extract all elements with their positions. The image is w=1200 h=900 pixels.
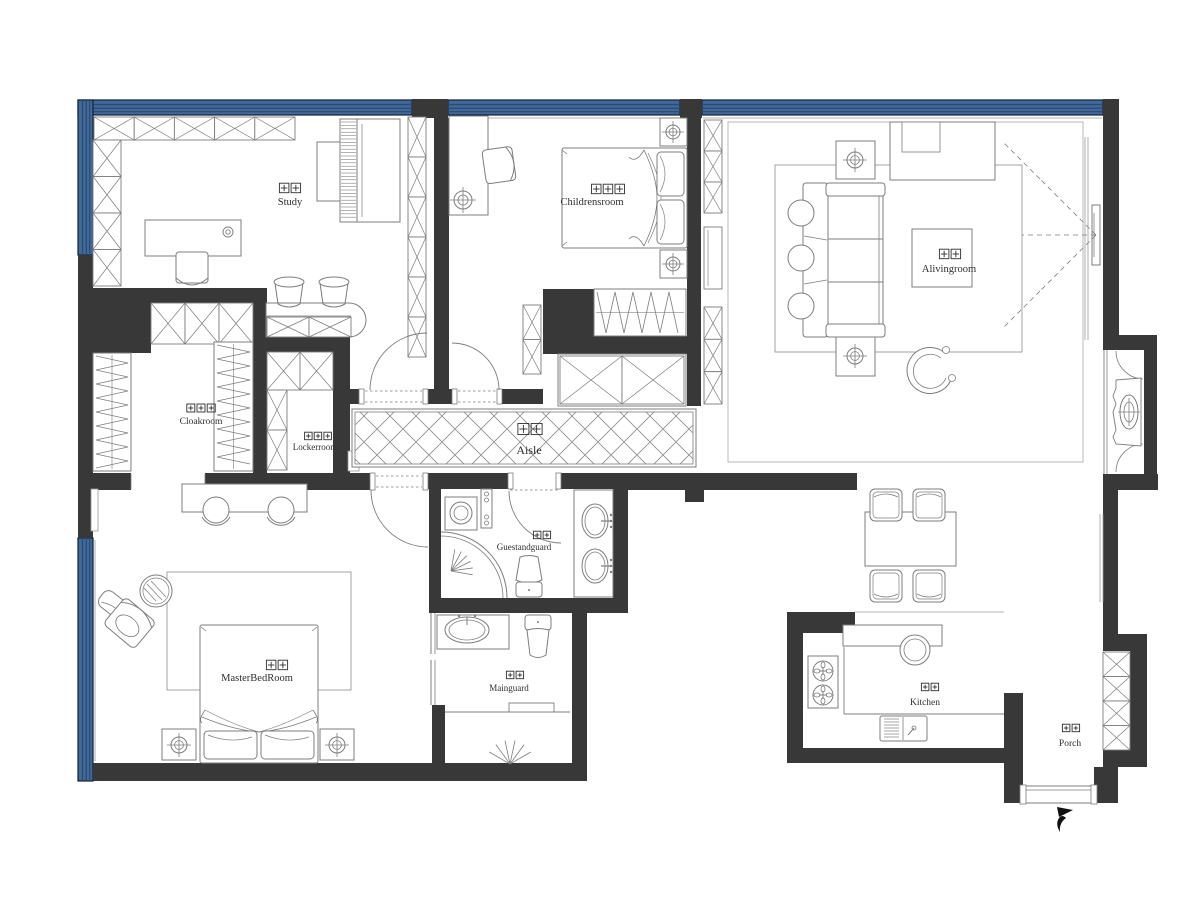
svg-text:Lockerroom: Lockerroom <box>293 442 337 452</box>
svg-text:MasterBedRoom: MasterBedRoom <box>221 673 293 684</box>
svg-text:Kitchen: Kitchen <box>910 698 940 708</box>
svg-text:Aisle: Aisle <box>516 443 541 457</box>
svg-text:Alivingroom: Alivingroom <box>922 264 976 275</box>
svg-text:Study: Study <box>278 197 303 208</box>
svg-text:Guestandguard: Guestandguard <box>497 542 552 552</box>
svg-text:Cloakroom: Cloakroom <box>180 417 223 427</box>
svg-text:Porch: Porch <box>1059 739 1081 749</box>
svg-text:Mainguard: Mainguard <box>489 683 529 693</box>
svg-text:Childrensroom: Childrensroom <box>561 197 624 208</box>
